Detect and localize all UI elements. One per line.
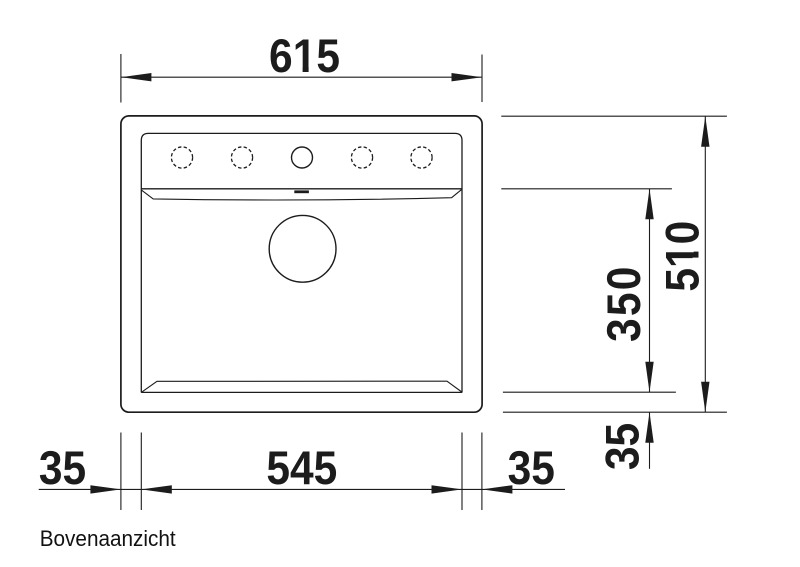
svg-text:350: 350 xyxy=(597,264,651,341)
svg-text:35: 35 xyxy=(508,441,555,495)
svg-text:Bovenaanzicht: Bovenaanzicht xyxy=(40,526,176,551)
svg-text:35: 35 xyxy=(39,441,86,495)
svg-text:545: 545 xyxy=(266,441,337,495)
svg-text:510: 510 xyxy=(655,221,709,292)
svg-text:35: 35 xyxy=(595,423,649,470)
svg-text:615: 615 xyxy=(269,29,340,83)
